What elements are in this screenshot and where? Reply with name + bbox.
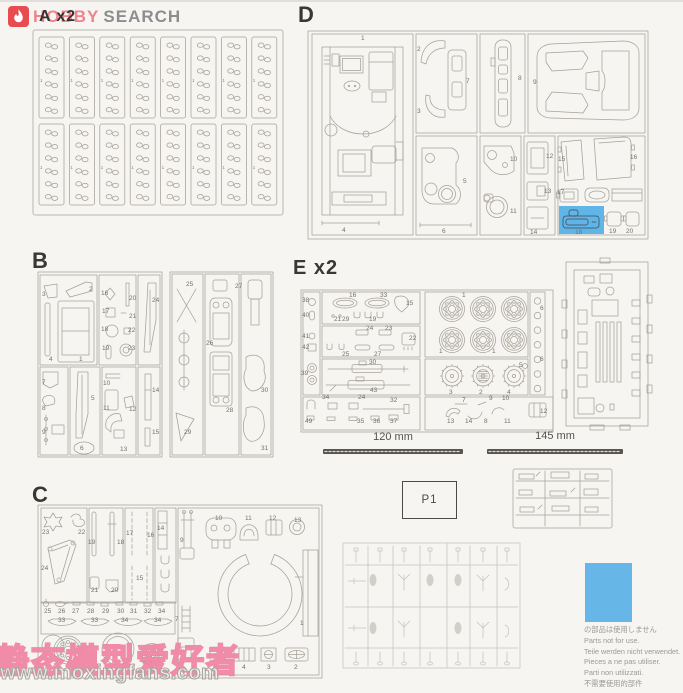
p1-bag-box: P1 (402, 481, 457, 519)
svg-text:1: 1 (40, 165, 43, 170)
svg-text:1: 1 (40, 78, 43, 83)
p1-bag-label: P1 (421, 494, 437, 506)
sprue-b-art (38, 272, 273, 457)
legend-line-fr: Pieces a ne pas utiliser. (584, 657, 683, 668)
svg-text:1: 1 (101, 165, 104, 170)
sprue-c-label: C (32, 482, 49, 508)
svg-text:1: 1 (162, 165, 165, 170)
sprue-a-art: 1111111111111111 (33, 30, 283, 215)
svg-text:1: 1 (222, 165, 225, 170)
svg-text:1: 1 (192, 165, 195, 170)
svg-text:1: 1 (192, 78, 195, 83)
rod-length-120: 120 mm (333, 431, 453, 443)
sprue-e-art (301, 290, 553, 432)
line-art: 1111111111111111 (0, 0, 683, 693)
svg-text:1: 1 (162, 78, 165, 83)
shop-logo: HOBBY SEARCH (8, 6, 181, 27)
svg-text:1: 1 (222, 78, 225, 83)
watermark-site-url: www.moxingfans.com (0, 662, 219, 685)
sprue-d-label: D (298, 2, 315, 28)
svg-text:1: 1 (70, 78, 73, 83)
legend-line-jp: の部品は使用しません (584, 625, 683, 636)
sprue-e-label: E x2 (293, 257, 338, 280)
not-for-use-highlight (559, 206, 604, 234)
sprue-d-art (308, 31, 648, 239)
legend-line-it: Parti non utilizzati. (584, 668, 683, 679)
small-sprue-art (513, 469, 612, 528)
rod-length-145: 145 mm (487, 430, 623, 442)
legend-line-en: Parts not for use. (584, 636, 683, 647)
measure-rods-art (323, 449, 623, 454)
svg-text:1: 1 (253, 78, 256, 83)
logo-word-search: SEARCH (103, 7, 181, 27)
flame-icon (8, 6, 29, 27)
legend-line-de: Teile werden nicht verwendet. (584, 647, 683, 658)
svg-text:1: 1 (253, 165, 256, 170)
not-for-use-legend: の部品は使用しません Parts not for use. Teile werd… (584, 625, 683, 690)
unused-sprue-art (343, 543, 520, 668)
svg-text:1: 1 (131, 165, 134, 170)
sprue-b-label: B (32, 248, 49, 274)
instruction-sheet-page: 1111111111111111 (0, 0, 683, 693)
etched-fret-art (562, 258, 652, 430)
svg-text:1: 1 (101, 78, 104, 83)
sprue-a-label: A x2 (39, 8, 76, 26)
not-for-use-swatch (585, 563, 632, 622)
svg-text:1: 1 (131, 78, 134, 83)
legend-line-cn: 不需要使用的部件 (584, 679, 683, 690)
svg-text:1: 1 (70, 165, 73, 170)
